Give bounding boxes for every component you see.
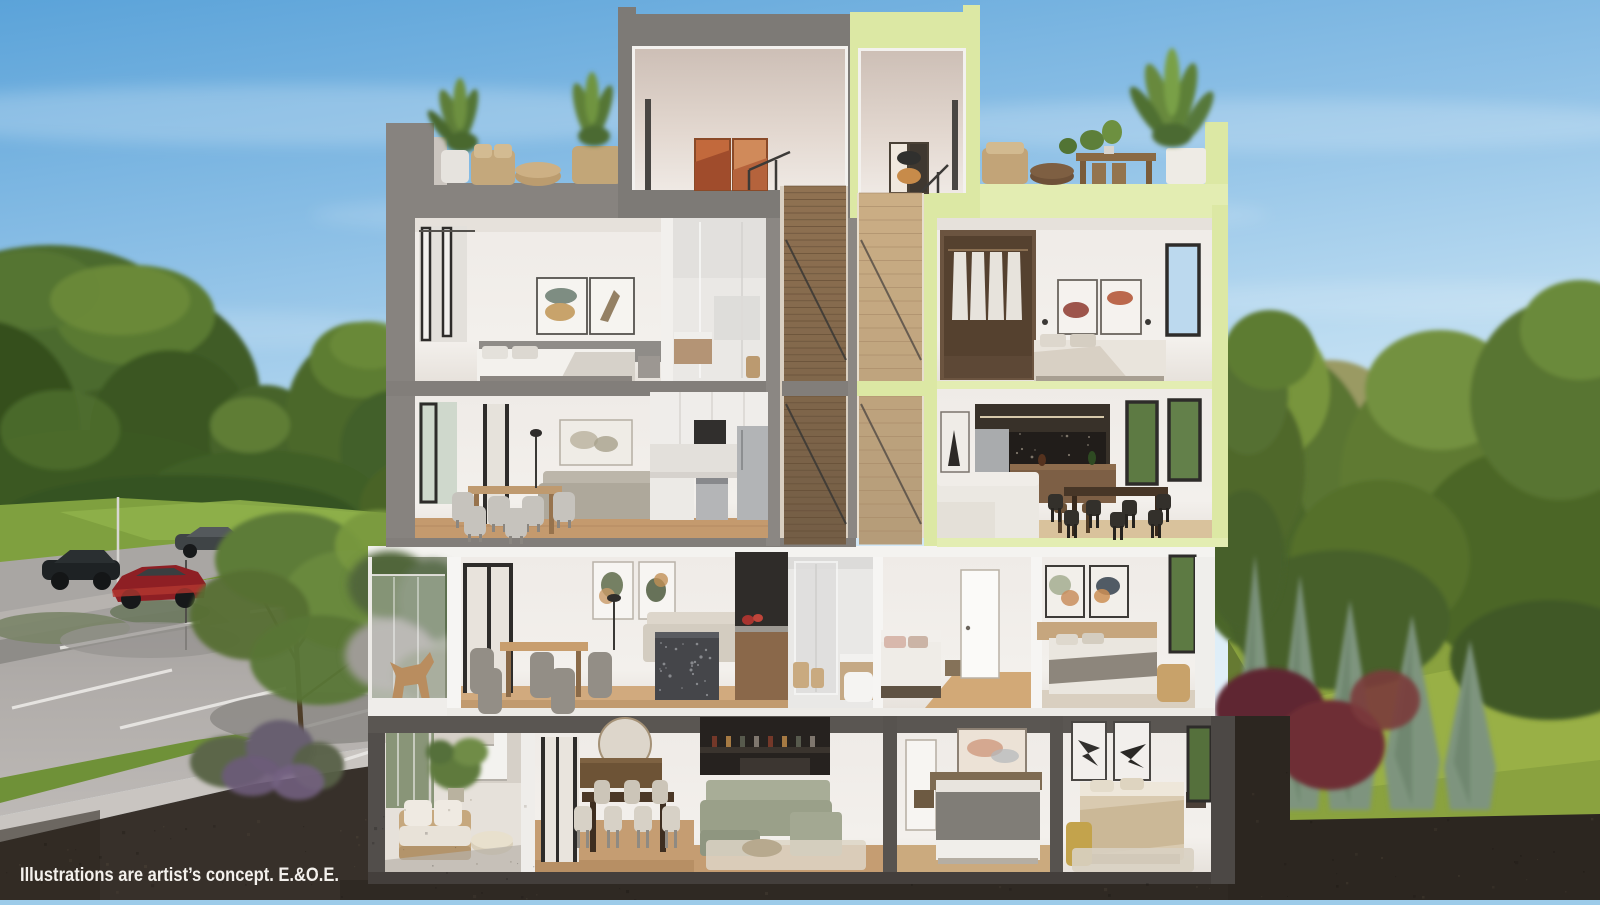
svg-text:Illustrations are artist’s con: Illustrations are artist’s concept. E.&O…: [20, 865, 339, 886]
